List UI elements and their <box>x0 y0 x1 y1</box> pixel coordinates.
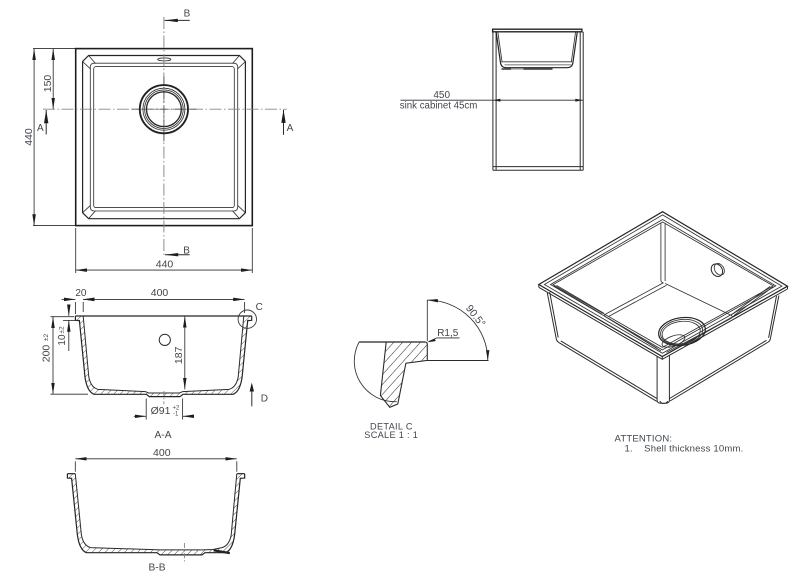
svg-text:C: C <box>256 302 263 313</box>
svg-text:400: 400 <box>151 287 169 299</box>
svg-text:Ø91: Ø91 <box>151 405 171 417</box>
svg-text:1. Shell thickness 10mm.: 1. Shell thickness 10mm. <box>625 444 744 455</box>
svg-text:SCALE 1 : 1: SCALE 1 : 1 <box>364 430 418 440</box>
svg-text:B-B: B-B <box>149 562 166 573</box>
svg-text:450: 450 <box>433 90 450 101</box>
svg-text:B: B <box>184 8 191 19</box>
svg-text:-1: -1 <box>173 412 179 418</box>
svg-text:440: 440 <box>156 258 174 270</box>
svg-text:20: 20 <box>75 288 87 299</box>
svg-text:R1,5: R1,5 <box>437 328 459 339</box>
svg-text:±2: ±2 <box>43 334 50 342</box>
svg-text:B: B <box>183 246 190 257</box>
svg-text:187: 187 <box>173 346 185 364</box>
svg-text:150: 150 <box>42 75 54 93</box>
svg-text:440: 440 <box>23 128 35 146</box>
svg-text:400: 400 <box>153 447 171 459</box>
svg-text:sink cabinet 45cm: sink cabinet 45cm <box>400 101 478 112</box>
svg-text:10: 10 <box>57 334 68 346</box>
svg-text:±2: ±2 <box>59 326 66 334</box>
svg-text:D: D <box>261 394 268 405</box>
svg-text:A: A <box>37 123 44 134</box>
svg-text:A: A <box>287 123 294 134</box>
svg-text:A-A: A-A <box>155 430 172 441</box>
svg-text:200: 200 <box>40 345 52 363</box>
